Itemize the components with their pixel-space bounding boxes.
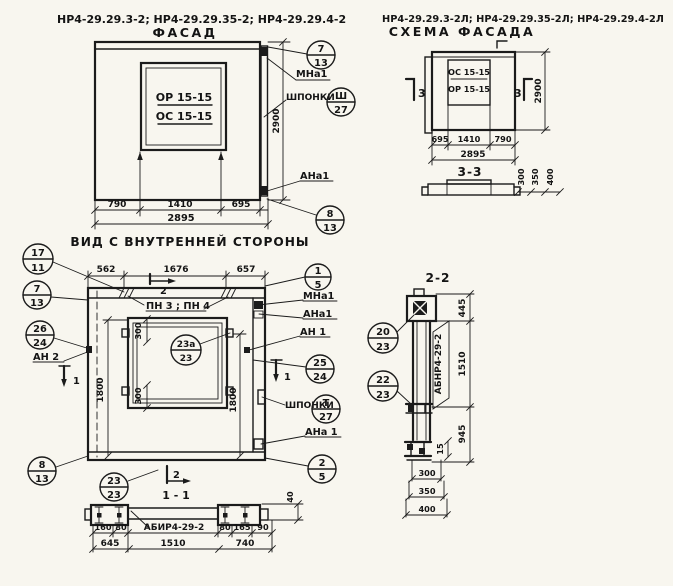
- win-dim-300-bottom: 300: [133, 387, 143, 404]
- dim-1510-v: 1510: [458, 351, 468, 376]
- schema-dim-2900: 2900: [534, 78, 544, 103]
- svg-text:25: 25: [313, 358, 327, 369]
- svg-text:23: 23: [376, 390, 390, 401]
- dim-80a: 80: [115, 522, 127, 532]
- dim-300-22: 300: [418, 468, 435, 478]
- svg-text:26: 26: [33, 324, 47, 335]
- svg-text:АНа1: АНа1: [300, 171, 329, 182]
- dim-400-22: 400: [418, 504, 435, 514]
- schema-dim-790: 790: [494, 134, 511, 144]
- svg-text:22: 22: [376, 375, 390, 386]
- svg-text:13: 13: [314, 58, 328, 69]
- svg-text:АНа1: АНа1: [303, 309, 332, 320]
- svg-text:Т: Т: [323, 398, 330, 409]
- schema-dim-350: 350: [530, 168, 540, 185]
- dim-350-22: 350: [418, 486, 435, 496]
- schema-dim-695: 695: [431, 134, 448, 144]
- svg-text:24: 24: [33, 338, 47, 349]
- svg-text:24: 24: [313, 372, 327, 383]
- innerview-title: ВИД С ВНУТРЕННЕЙ СТОРОНЫ: [70, 234, 309, 249]
- svg-text:13: 13: [323, 223, 337, 234]
- svg-text:2: 2: [160, 286, 167, 297]
- svg-text:17: 17: [31, 248, 45, 259]
- dim-160: 160: [94, 522, 111, 532]
- svg-text:ПН 3 ; ПН 4: ПН 3 ; ПН 4: [146, 301, 210, 312]
- svg-text:8: 8: [327, 209, 334, 220]
- dim-40: 40: [285, 491, 295, 503]
- schema-dim-2895: 2895: [460, 150, 485, 160]
- inner-dim-1676: 1676: [163, 265, 188, 275]
- schema-dim-400: 400: [545, 168, 555, 185]
- section-2-2-title: 2-2: [425, 271, 450, 285]
- svg-text:2: 2: [173, 470, 180, 481]
- inner-dim-1800-left: 1800: [96, 377, 106, 402]
- section-3-3-title: 3-3: [457, 165, 482, 179]
- svg-text:5: 5: [315, 280, 322, 291]
- facade-window-mark-1: ОР 15-15: [156, 91, 212, 104]
- schema-window-mark-2: ОР 15-15: [448, 84, 490, 94]
- facade-dim-1410: 1410: [167, 200, 192, 210]
- svg-text:АН 2: АН 2: [33, 352, 59, 363]
- section-1-1-title: 1 - 1: [162, 489, 190, 502]
- schema-dim-1410: 1410: [458, 134, 481, 144]
- svg-text:1: 1: [315, 266, 322, 277]
- svg-text:27: 27: [319, 412, 333, 423]
- schema-dim-300: 300: [516, 168, 526, 185]
- dim-15: 15: [435, 443, 445, 455]
- svg-text:2: 2: [319, 458, 326, 469]
- dim-80b: 80: [219, 522, 231, 532]
- schema-window-mark-1: ОС 15-15: [448, 67, 490, 77]
- svg-text:5: 5: [319, 472, 326, 483]
- svg-text:11: 11: [31, 263, 45, 274]
- dim-90: 90: [257, 522, 269, 532]
- svg-text:1: 1: [284, 372, 291, 383]
- svg-text:23: 23: [376, 342, 390, 353]
- svg-text:27: 27: [334, 105, 348, 116]
- svg-text:АБНР4-29-2: АБНР4-29-2: [434, 334, 444, 394]
- dim-165: 165: [233, 522, 250, 532]
- facade-dim-695: 695: [232, 200, 251, 210]
- svg-text:13: 13: [30, 298, 44, 309]
- svg-text:3: 3: [514, 87, 522, 100]
- dim-740: 740: [236, 539, 255, 549]
- svg-text:7: 7: [318, 44, 325, 55]
- facade-window-mark-2: ОС 15-15: [156, 110, 212, 123]
- dim-445: 445: [458, 299, 468, 318]
- svg-text:Ш: Ш: [335, 91, 347, 102]
- inner-dim-562: 562: [97, 265, 116, 275]
- svg-text:20: 20: [376, 327, 390, 338]
- svg-text:МНа1: МНа1: [303, 291, 335, 302]
- facade-dim-2895: 2895: [167, 213, 194, 224]
- drawing-sheet: НР4-29.29.3-2; НР4-29.29.35-2; НР4-29.29…: [0, 0, 673, 586]
- inner-dim-1800-right: 1800: [229, 387, 239, 412]
- svg-text:23: 23: [107, 476, 121, 487]
- dim-945: 945: [458, 425, 468, 444]
- svg-text:3: 3: [418, 87, 426, 100]
- facade-dim-2900: 2900: [272, 108, 282, 133]
- svg-text:23а: 23а: [177, 340, 196, 350]
- svg-text:13: 13: [35, 474, 49, 485]
- svg-text:23: 23: [180, 354, 193, 364]
- technical-drawing: НР4-29.29.3-2; НР4-29.29.35-2; НР4-29.29…: [0, 0, 673, 586]
- dim-645: 645: [101, 539, 120, 549]
- facade-dim-790: 790: [108, 200, 127, 210]
- schema-title: СХЕМА ФАСАДА: [389, 24, 535, 39]
- svg-text:1: 1: [73, 376, 80, 387]
- svg-text:АНа 1: АНа 1: [305, 427, 338, 438]
- facade-title: ФАСАД: [153, 25, 218, 40]
- svg-text:АБИР4-29-2: АБИР4-29-2: [144, 523, 204, 533]
- paper-background: [0, 0, 673, 586]
- inner-dim-657: 657: [237, 265, 256, 275]
- svg-text:МНа1: МНа1: [296, 69, 328, 80]
- svg-text:8: 8: [39, 460, 46, 471]
- svg-text:23: 23: [107, 490, 121, 501]
- dim-1510: 1510: [160, 539, 185, 549]
- win-dim-300-top: 300: [133, 322, 143, 339]
- svg-text:7: 7: [34, 284, 41, 295]
- svg-text:АН 1: АН 1: [300, 327, 326, 338]
